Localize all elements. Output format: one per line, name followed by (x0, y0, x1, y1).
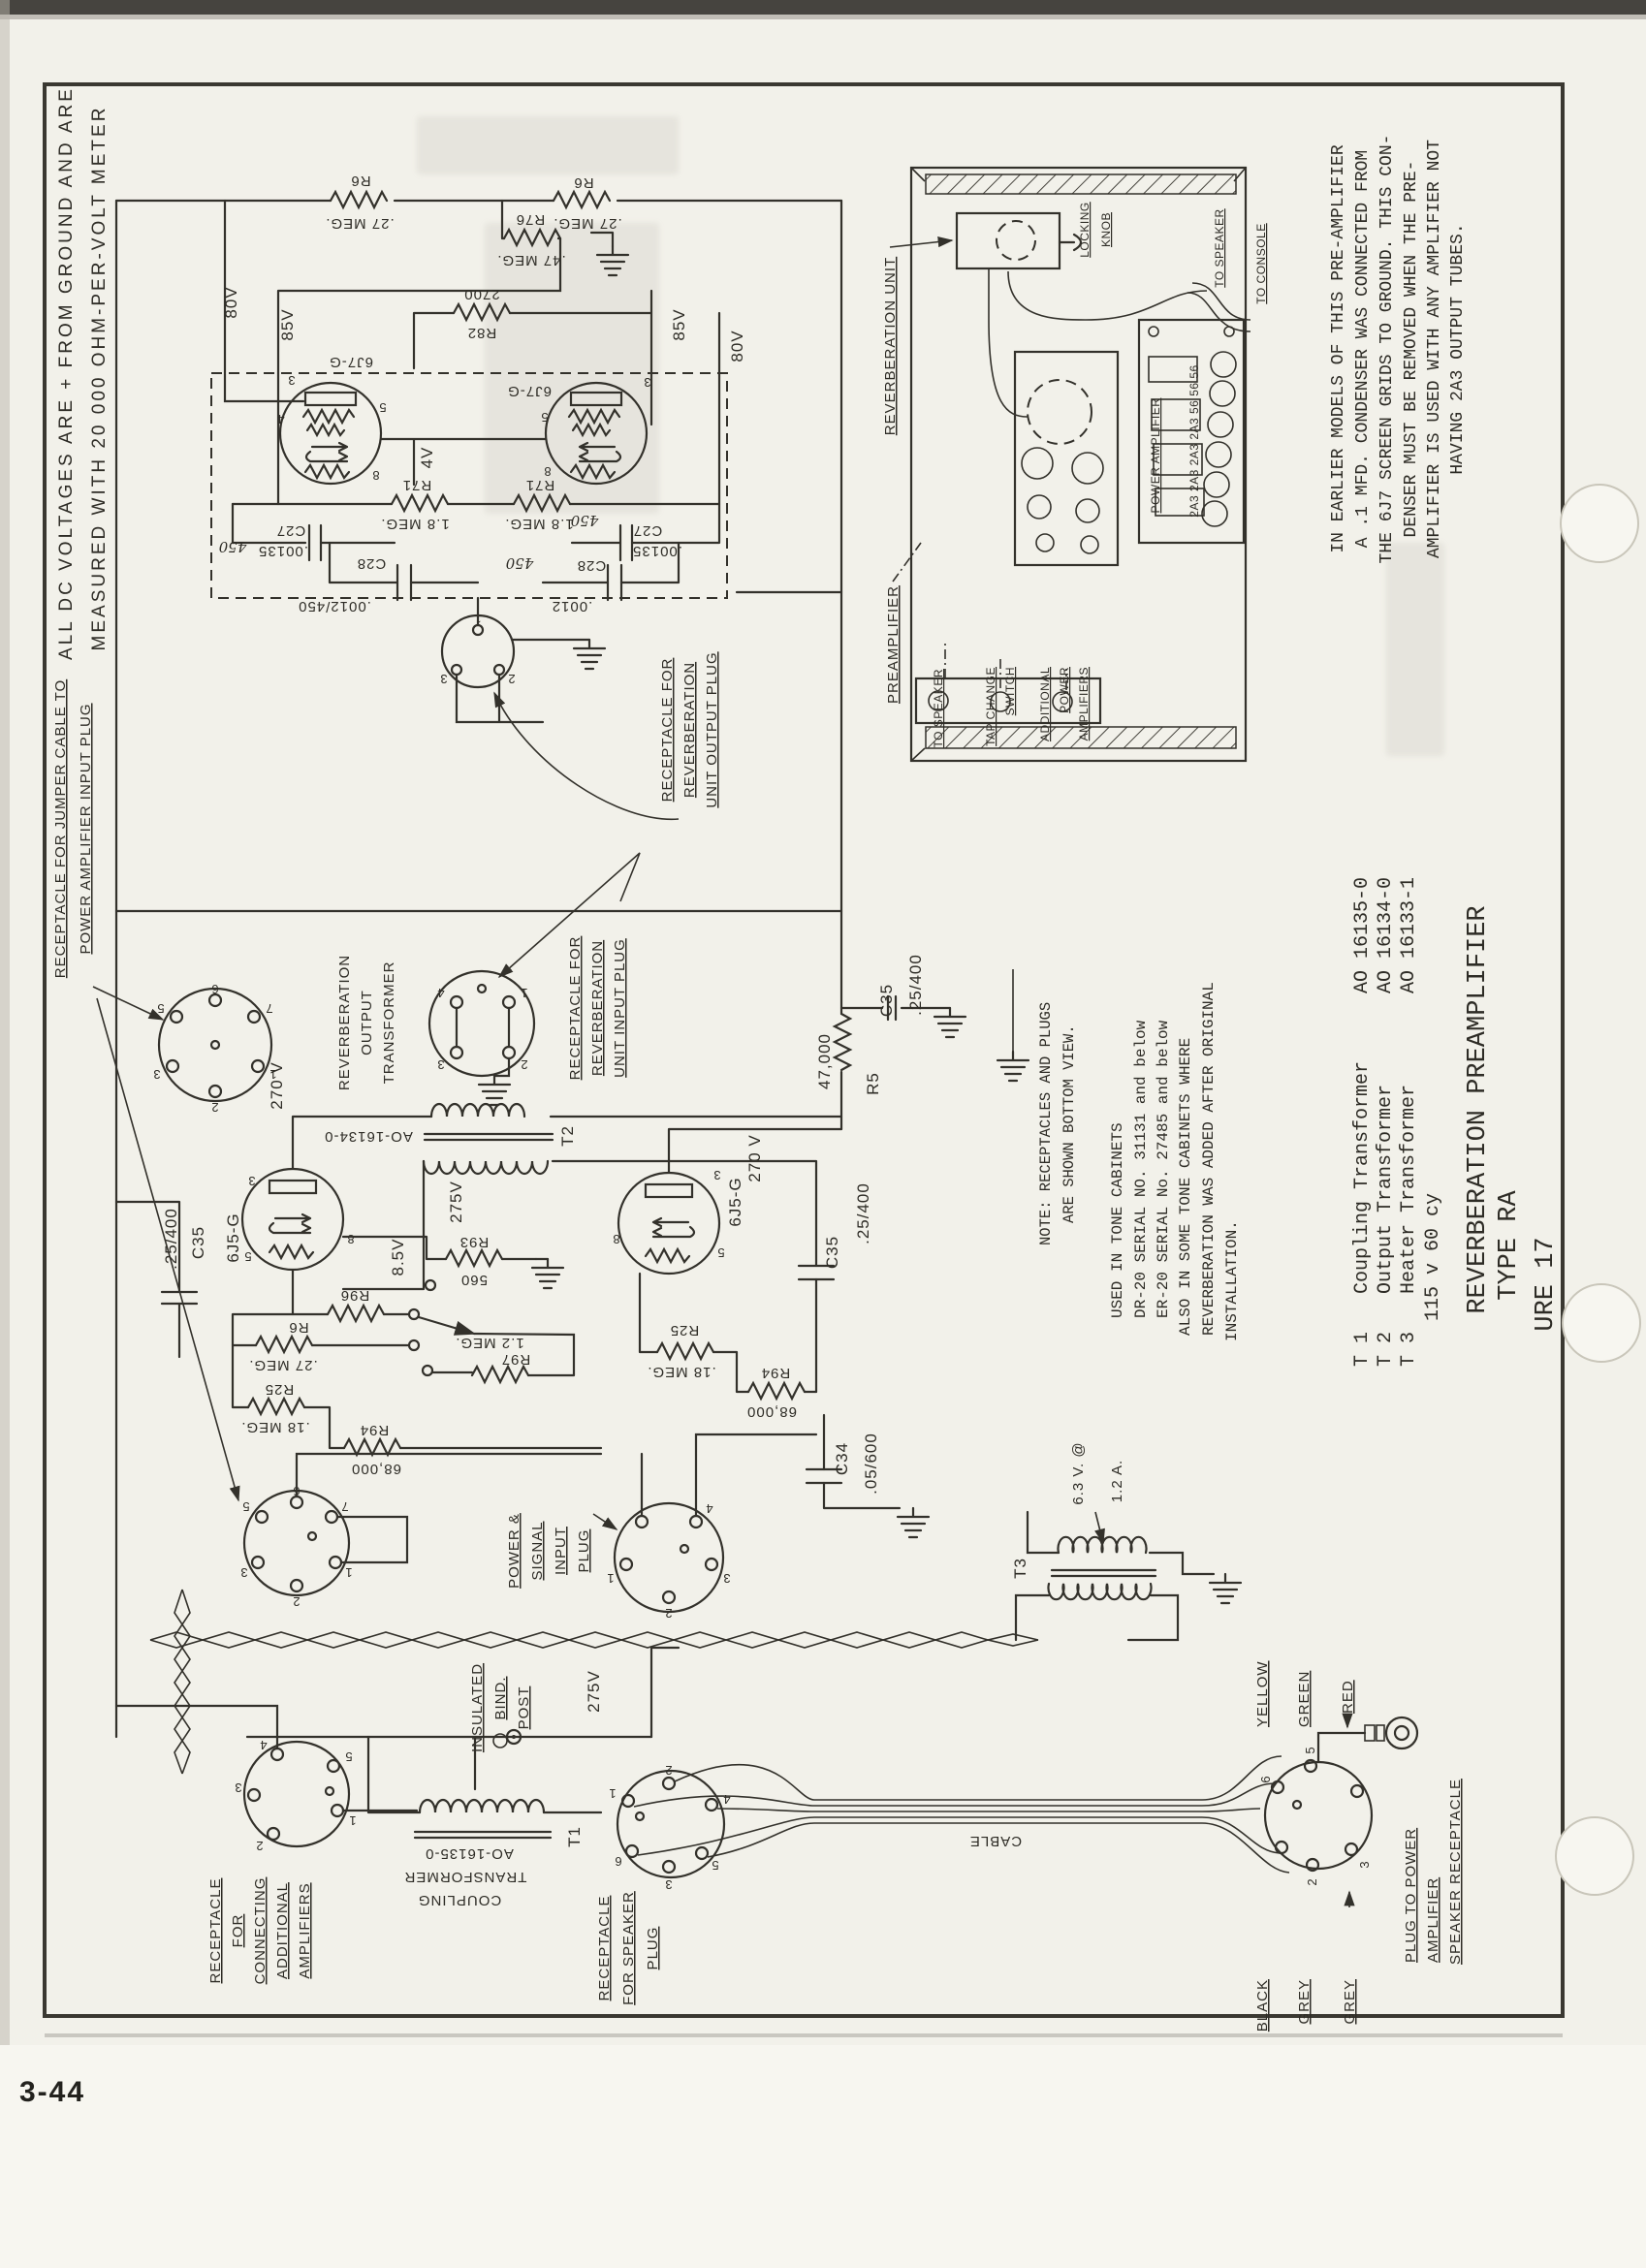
punch-hole (1563, 1284, 1640, 1362)
t1-part: AO-16135-0 (425, 1845, 514, 1862)
cap-c34-value: .05/600 (862, 1433, 880, 1495)
t1-name: COUPLING (418, 1892, 501, 1908)
note-line: HAVING 2A3 OUTPUT TUBES. (1448, 223, 1468, 474)
cap-c35-name: C35 (877, 984, 896, 1017)
pin-3: 3 (235, 1780, 241, 1795)
transformer-t2: AO-16134-0 T2 (324, 1104, 577, 1174)
pencil-450: 450 (505, 554, 534, 572)
dc-voltage-note: ALL DC VOLTAGES ARE + FROM GROUND AND AR… (56, 86, 110, 660)
voltage-275v: 275V (447, 1181, 465, 1223)
connector-power-amp-plug: 5 6 2 3 (1258, 1717, 1417, 1886)
cap-c35a-name: C35 (189, 1226, 207, 1259)
table-row-id: T 3 (1398, 1332, 1420, 1367)
table-row-part: AO 16134-0 (1375, 877, 1397, 993)
connector-jumper-plug: 6 7 5 1 3 2 (240, 1454, 601, 1609)
speaker-cable: CABLE (634, 1756, 1289, 1873)
wire-color-black: BLACK (1254, 1979, 1271, 2032)
pin-4: 4 (723, 1792, 730, 1807)
transformer-t3: T3 6.3 V. @ 1.2 A. (1011, 1441, 1241, 1640)
pin-6: 6 (1258, 1776, 1273, 1782)
callout-power-amp-plug: PLUG TO POWER AMPLIFIER SPEAKER RECEPTAC… (1403, 1779, 1464, 1965)
resistor-r94-value: 68,000 (351, 1461, 401, 1477)
power-amplifier-label: POWER AMPLIFIER (1149, 398, 1162, 514)
pin-2: 2 (256, 1839, 263, 1853)
pin-1: 1 (345, 1565, 352, 1580)
callout-line: CONNECTING (252, 1877, 269, 1985)
callout-line: REVERBERATION (589, 940, 606, 1076)
voltage-85v-right: 85V (670, 308, 688, 340)
resistor-r94-name: R94 (360, 1422, 390, 1438)
pin-8: 8 (372, 468, 379, 483)
t2-label: T2 (558, 1125, 577, 1147)
punch-hole (1556, 1817, 1633, 1895)
t3-rating: 1.2 A. (1109, 1460, 1125, 1502)
pin-3: 3 (288, 373, 295, 388)
voltage-275v-lower: 275V (585, 1670, 603, 1713)
additional-amps-label: AMPLIFIERS (1077, 667, 1091, 740)
cap-c28-value: .0012/450 (298, 598, 371, 614)
resistor-r97-name: R97 (501, 1351, 531, 1368)
callout-line: PLUG TO POWER (1403, 1828, 1419, 1963)
note-line: DENSER MUST BE REMOVED WHEN THE PRE- (1402, 161, 1421, 538)
resistor-r97-value: 1.2 MEG. (455, 1335, 523, 1351)
wire-color-grey: GREY (1342, 1979, 1358, 2025)
tap-change-switch-label: TAP CHANGE (984, 667, 997, 746)
preamplifier-label: PREAMPLIFIER (885, 585, 902, 704)
callout-line: RECEPTACLE (596, 1896, 613, 2001)
note-line: REVERBERATION WAS ADDED AFTER ORIGINAL (1200, 982, 1218, 1336)
note-line: ER-20 SERIAL No. 27485 and below (1155, 1020, 1172, 1318)
wire-color-yellow: YELLOW (1254, 1660, 1271, 1727)
jumper-callout-line: POWER AMPLIFIER INPUT PLUG (78, 703, 94, 954)
reverb-out-transformer-label: OUTPUT (359, 990, 375, 1055)
callout-line: FOR (230, 1914, 246, 1948)
connector-power-signal-plug: 4 3 1 2 (607, 1434, 816, 1621)
bottom-section: RECEPTACLE FOR JUMPER CABLE TO POWER AMP… (52, 679, 1464, 2032)
pin-3: 3 (1357, 1861, 1372, 1868)
resistor-r25-value: .18 MEG. (240, 1419, 309, 1435)
pin-7: 7 (341, 1499, 348, 1514)
pin-3: 3 (723, 1571, 730, 1586)
pin-2: 2 (508, 672, 515, 686)
pin-2: 2 (521, 1057, 527, 1072)
resistor-r96-name: R96 (340, 1287, 370, 1304)
to-speaker-lower-label: TO SPEAKER (932, 669, 945, 747)
tube-label-6j5: 6J5-G (224, 1213, 242, 1262)
callout-line: AMPLIFIER (1425, 1877, 1441, 1963)
bind-post-label: POST (516, 1686, 532, 1730)
callout-line: UNIT INPUT PLUG (612, 938, 628, 1078)
table-row-name: Coupling Transformer (1351, 1061, 1374, 1294)
header-line1: ALL DC VOLTAGES ARE + FROM GROUND AND AR… (56, 86, 77, 660)
callout-line: SPEAKER RECEPTACLE (1447, 1779, 1464, 1965)
callout-line: RECEPTACLE FOR (567, 936, 584, 1081)
pin-8: 8 (613, 1232, 619, 1246)
tube-6j7-right: 6J7-G 5 8 3 (507, 375, 651, 484)
to-speaker-label: TO SPEAKER (1213, 208, 1226, 287)
resistor-r6sw-value: .27 MEG. (248, 1357, 317, 1373)
resistor-r76-value: .47 MEG. (496, 252, 565, 268)
pin-1: 1 (269, 1067, 276, 1082)
wire-color-green: GREEN (1296, 1671, 1313, 1727)
pin-5: 5 (379, 400, 386, 415)
t2-part-number: AO-16134-0 (324, 1128, 413, 1145)
voltage-270v-right: 270 V (745, 1134, 764, 1181)
used-in-note: USED IN TONE CABINETS DR-20 SERIAL NO. 3… (1109, 982, 1241, 1341)
pin-3: 3 (153, 1067, 160, 1082)
pin-3: 3 (437, 1057, 444, 1072)
pin-5: 5 (157, 1001, 164, 1016)
reverberation-unit-label: REVERBERATION UNIT (882, 257, 899, 435)
resistor-r25b-value: .18 MEG. (647, 1364, 715, 1380)
earlier-models-note: IN EARLIER MODELS OF THIS PRE-AMPLIFIER … (1329, 135, 1468, 564)
output-tube-labels: 2A3 2A3 2A3 2A3 56 56 56 (1187, 364, 1201, 517)
voltage-8-5v: 8.5V (389, 1239, 407, 1276)
connector-additional-amps: 4 5 3 1 2 (116, 1706, 417, 1853)
connector-jumper-receptacle: 6 7 5 1 3 2 (153, 982, 276, 1115)
callout-line: UNIT OUTPUT PLUG (704, 651, 720, 807)
jumper-callout-line: RECEPTACLE FOR JUMPER CABLE TO (52, 679, 69, 978)
resistor-r6-value: .27 MEG. (325, 215, 394, 232)
pencil-450: 450 (570, 512, 599, 529)
pencil-450: 450 (218, 538, 247, 555)
wire-color-grey: GREY (1296, 1979, 1313, 2025)
resistor-r82-name: R82 (467, 325, 497, 341)
pin-2: 2 (1305, 1878, 1319, 1885)
voltage-4v: 4V (418, 447, 436, 469)
pin-5: 5 (541, 410, 548, 425)
resistor-r93-value: 560 (460, 1272, 488, 1288)
pin-3: 3 (665, 1877, 672, 1892)
pin-3: 3 (440, 672, 447, 686)
callout-line: INPUT (553, 1527, 569, 1575)
resistor-r25-name: R25 (265, 1381, 295, 1398)
t3-rating: 6.3 V. @ (1070, 1441, 1087, 1504)
connector-reverb-input: 4 1 3 2 (429, 971, 534, 1105)
table-row-name: Output Transformer (1375, 1085, 1397, 1294)
pin-1: 1 (607, 1571, 614, 1586)
connector-reverb-output: 1 3 2 (440, 598, 605, 722)
resistor-r6b-value: .27 MEG. (553, 215, 621, 232)
figure-type: TYPE RA (1495, 1189, 1524, 1300)
resistor-r71b-value: 1.8 MEG. (504, 516, 573, 532)
t1-name: TRANSFORMER (404, 1869, 527, 1885)
resistor-r94b-name: R94 (761, 1365, 791, 1381)
tube-label-6j7: 6J7-G (329, 354, 373, 370)
reverb-out-transformer-label: TRANSFORMER (381, 961, 397, 1085)
resistor-r6sw-name: R6 (288, 1319, 308, 1336)
pin-8: 8 (347, 1232, 354, 1246)
cap-c28b-value: .0012 (552, 598, 593, 614)
reverb-out-transformer-label: REVERBERATION (336, 955, 353, 1090)
page-number: 3-44 (19, 2076, 85, 2109)
to-console-label: TO CONSOLE (1254, 223, 1268, 303)
tube-6j5-right: 6J5-G 3 5 8 (613, 1168, 744, 1274)
note-line: AMPLIFIER IS USED WITH ANY AMPLIFIER NOT (1425, 140, 1444, 558)
pin-3: 3 (248, 1174, 255, 1188)
resistor-r71-value: 1.8 MEG. (380, 516, 449, 532)
pin-7: 7 (266, 1001, 272, 1016)
pin-2: 2 (211, 1100, 218, 1115)
callout-reverb-output-receptacle: RECEPTACLE FOR REVERBERATION UNIT OUTPUT… (494, 651, 720, 819)
resistor-r71b-name: R71 (525, 477, 555, 493)
schematic-artwork: ALL DC VOLTAGES ARE + FROM GROUND AND AR… (0, 0, 1646, 2268)
callout-additional-amps: RECEPTACLE FOR CONNECTING ADDITIONAL AMP… (207, 1877, 313, 1985)
pin-4: 4 (437, 986, 444, 1000)
pin-5: 5 (242, 1499, 249, 1514)
locking-knob-label: KNOB (1099, 212, 1113, 247)
cap-c28b-name: C28 (577, 557, 607, 574)
note-line: ARE SHOWN BOTTOM VIEW. (1060, 1024, 1078, 1223)
pin-2: 2 (665, 1763, 672, 1778)
pin-8: 8 (544, 464, 551, 479)
cap-c27-name: C27 (276, 522, 306, 539)
pin-5: 5 (712, 1858, 718, 1873)
note-line: THE 6J7 SCREEN GRIDS TO GROUND. THIS CON… (1377, 135, 1397, 564)
cap-c27b-name: C27 (633, 522, 663, 539)
note-line: INSTALLATION. (1223, 1220, 1241, 1341)
figure-title: REVERBERATION PREAMPLIFIER (1464, 905, 1493, 1313)
t3-label: T3 (1011, 1558, 1029, 1579)
bind-post-label: INSULATED (469, 1663, 486, 1752)
note-line: A .1 MFD. CONDENSER WAS CONNECTED FROM (1353, 150, 1373, 548)
cap-c35c-name: C35 (823, 1236, 841, 1269)
note-line: USED IN TONE CABINETS (1109, 1122, 1126, 1318)
resistor-r94b-value: 68,000 (746, 1403, 797, 1420)
callout-line: SIGNAL (529, 1521, 546, 1580)
table-row-id: T 1 (1351, 1332, 1374, 1367)
connector-speaker-receptacle: 2 1 4 6 5 3 (609, 1763, 730, 1892)
additional-amps-label: POWER (1058, 667, 1071, 713)
tone-switch-network: R96 R6 .27 MEG. 1.2 MEG. R97 (233, 1270, 574, 1382)
wire-color-red: RED (1340, 1680, 1356, 1714)
callout-line: RECEPTACLE FOR (659, 658, 676, 803)
tap-change-switch-label: SWITCH (1003, 667, 1017, 715)
pin-4: 4 (277, 412, 284, 426)
punch-hole (1561, 485, 1638, 562)
pin-3: 3 (713, 1168, 720, 1182)
pin-5: 5 (244, 1249, 251, 1264)
note-line: DR-20 SERIAL NO. 31131 and below (1132, 1020, 1150, 1318)
transformer-table: T 1 Coupling Transformer AO 16135-0 T 2 … (1351, 877, 1444, 1367)
cap-c28-name: C28 (357, 555, 387, 572)
table-row-part: AO 16133-1 (1398, 877, 1420, 993)
callout-line: PLUG (645, 1927, 661, 1970)
cap-c35-value: .25/400 (906, 954, 925, 1016)
voltage-85v: 85V (278, 308, 297, 340)
pin-1: 1 (349, 1813, 356, 1828)
note-line: IN EARLIER MODELS OF THIS PRE-AMPLIFIER (1329, 144, 1348, 552)
resistor-r6-name: R6 (350, 173, 370, 189)
pin-3: 3 (644, 375, 650, 390)
pin-5: 5 (1303, 1747, 1317, 1753)
pin-4: 4 (260, 1738, 267, 1752)
callout-speaker-receptacle: RECEPTACLE FOR SPEAKER PLUG (596, 1891, 661, 2005)
pin-5: 5 (345, 1749, 352, 1764)
callout-reverb-input-receptacle: RECEPTACLE FOR REVERBERATION UNIT INPUT … (499, 853, 640, 1080)
pin-5: 5 (717, 1245, 724, 1260)
table-row-part: AO 16135-0 (1351, 877, 1374, 993)
callout-line: AMPLIFIERS (297, 1882, 313, 1978)
pin-2: 2 (665, 1606, 672, 1621)
additional-amps-label: ADDITIONAL (1038, 667, 1052, 741)
table-footer: 115 v 60 cy (1422, 1193, 1444, 1321)
table-row-name: Heater Transformer (1398, 1085, 1420, 1294)
pin-1: 1 (521, 986, 527, 1000)
header-line2: MEASURED WITH 20 000 OHM-PER-VOLT METER (89, 106, 110, 651)
resistor-r82-value: 2700 (463, 286, 499, 302)
note-line: NOTE: RECEPTACLES AND PLUGS (1037, 1002, 1055, 1245)
pin-4: 4 (706, 1501, 712, 1516)
pin-1: 1 (609, 1786, 616, 1801)
resistor-r93-name: R93 (459, 1234, 490, 1250)
cap-c27b-value: .00135 (632, 543, 682, 559)
resistor-r71-name: R71 (402, 477, 432, 493)
figure-number: URE 17 (1532, 1237, 1561, 1331)
voltage-80v-right: 80V (728, 330, 746, 362)
tube-6j5-left: 6J5-G 3 5 8 (224, 1169, 355, 1270)
locking-knob-label: LOCKING (1078, 202, 1092, 258)
resistor-r25b-name: R25 (670, 1322, 700, 1339)
tube-label-6j7b: 6J7-G (507, 383, 552, 399)
pin-6: 6 (211, 982, 218, 996)
table-row-id: T 2 (1375, 1332, 1397, 1367)
cap-c27-value: .00135 (258, 543, 308, 559)
callout-power-signal-plug: POWER & SIGNAL INPUT PLUG (506, 1513, 617, 1589)
scanned-schematic-page: ALL DC VOLTAGES ARE + FROM GROUND AND AR… (0, 0, 1646, 2268)
cap-c35c-value: .25/400 (854, 1182, 872, 1244)
cap-c34-name: C34 (833, 1442, 851, 1475)
cable-label: CABLE (969, 1833, 1022, 1849)
callout-line: FOR SPEAKER (620, 1891, 637, 2005)
pin-3: 3 (240, 1565, 247, 1580)
wire-color-labels: YELLOW GREEN RED BLACK GREY GREY (1254, 1660, 1358, 2032)
voltage-80v: 80V (222, 286, 240, 318)
bottom-view-note: NOTE: RECEPTACLES AND PLUGS ARE SHOWN BO… (1037, 1002, 1078, 1245)
tube-label-6j5b: 6J5-G (726, 1177, 744, 1226)
callout-line: RECEPTACLE (207, 1878, 224, 1984)
callout-line: REVERBERATION (681, 662, 698, 798)
figure-caption: REVERBERATION PREAMPLIFIER TYPE RA URE 1… (1464, 905, 1561, 1331)
transformer-t1: T1 AO-16135-0 TRANSFORMER COUPLING (368, 1737, 601, 1908)
resistor-r6b-name: R6 (573, 174, 593, 191)
callout-line: POWER & (506, 1513, 522, 1589)
resistor-r5-name: R5 (864, 1072, 882, 1095)
t1-label: T1 (565, 1826, 584, 1847)
pin-2: 2 (293, 1594, 300, 1609)
note-line: ALSO IN SOME TONE CABINETS WHERE (1177, 1038, 1194, 1336)
preamp-stage-6j7: R6 .27 MEG. R6 .27 MEG. R76 .47 MEG. 80V… (211, 173, 746, 819)
callout-line: PLUG (576, 1529, 592, 1573)
pin-6: 6 (615, 1854, 621, 1869)
callout-line: ADDITIONAL (274, 1882, 291, 1979)
cabinet-illustration: LOCKING KNOB TO SPEAKER TO CONSOLE (882, 168, 1268, 1081)
resistor-r76-name: R76 (516, 211, 546, 228)
resistor-r5-value: 47,000 (815, 1033, 834, 1089)
bind-post-label: BIND. (492, 1676, 509, 1719)
